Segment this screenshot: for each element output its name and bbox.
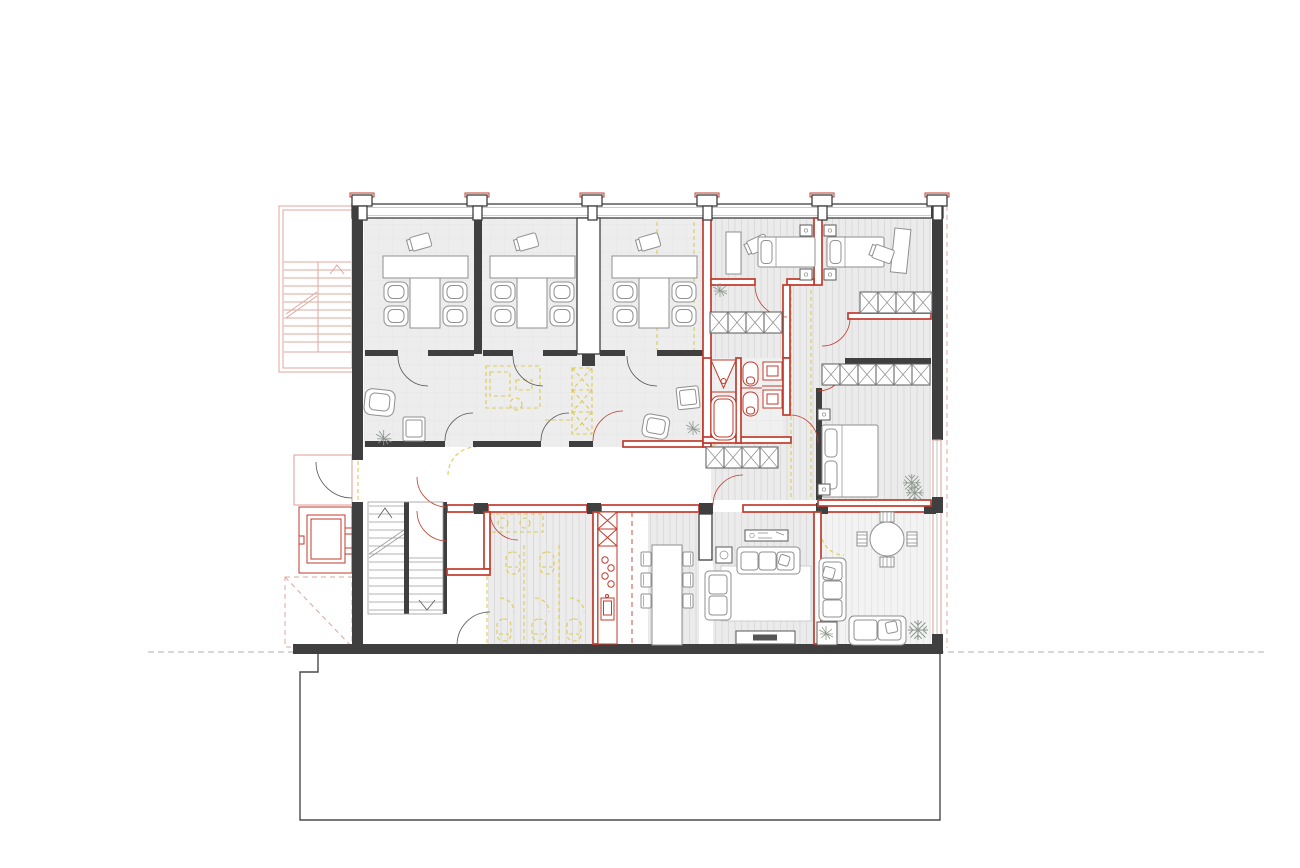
nightstand-icon bbox=[818, 484, 830, 495]
nightstand-icon bbox=[824, 225, 836, 236]
floor-plan-canvas bbox=[0, 0, 1300, 868]
kitchen-fixtures bbox=[598, 512, 632, 644]
toilet-icon bbox=[743, 392, 758, 416]
plant-icon bbox=[906, 484, 924, 502]
washbasin-icon bbox=[763, 390, 782, 408]
wardrobe-icon bbox=[822, 364, 930, 385]
nightstand-icon bbox=[800, 225, 812, 236]
duct-wall bbox=[577, 218, 600, 354]
floor-plan-page bbox=[0, 0, 1300, 868]
right-wall-upper bbox=[932, 204, 943, 440]
corridor-floor bbox=[364, 447, 704, 505]
nightstand-icon bbox=[824, 269, 836, 280]
desk-icon bbox=[726, 232, 741, 274]
planter-icon bbox=[817, 622, 837, 645]
stair-down-arrow-icon bbox=[419, 600, 435, 610]
chair-icon bbox=[683, 594, 693, 608]
entrance-porch bbox=[294, 455, 352, 505]
chair-icon bbox=[880, 557, 894, 567]
toilet-icon bbox=[743, 362, 758, 386]
left-wall-lower bbox=[352, 502, 363, 650]
sink-icon bbox=[601, 595, 614, 621]
top-facade-wall bbox=[352, 204, 943, 218]
left-wall-upper bbox=[352, 204, 363, 460]
bathtub-icon bbox=[711, 396, 736, 440]
stair-up-arrow-icon bbox=[378, 508, 392, 518]
single-bed-icon bbox=[758, 237, 815, 267]
bottom-wall bbox=[293, 644, 943, 654]
washbasin-icon bbox=[763, 362, 782, 380]
sofa-icon bbox=[737, 547, 800, 574]
nightstand-icon bbox=[800, 269, 812, 280]
plant-icon bbox=[903, 474, 921, 492]
dining-table-icon bbox=[652, 545, 682, 645]
chair-icon bbox=[907, 532, 917, 546]
wardrobe-icon bbox=[860, 292, 932, 313]
side-chair-icon bbox=[403, 417, 425, 441]
chair-icon bbox=[683, 552, 693, 566]
nightstand-icon bbox=[818, 409, 830, 420]
chair-icon bbox=[641, 573, 651, 587]
external-stair bbox=[279, 206, 356, 372]
side-chair-icon bbox=[676, 386, 700, 410]
chair-icon bbox=[880, 512, 894, 522]
tall-unit-icon bbox=[598, 529, 617, 546]
elevator-shaft bbox=[299, 507, 352, 573]
wardrobe-icon bbox=[706, 447, 778, 468]
media-unit-icon bbox=[716, 547, 732, 563]
chaise-icon bbox=[705, 571, 731, 620]
chair-icon bbox=[683, 573, 693, 587]
sofa-icon bbox=[849, 616, 906, 645]
exterior-structures bbox=[279, 206, 356, 647]
tv-lowboard-icon bbox=[736, 631, 795, 644]
tall-unit-icon bbox=[598, 512, 617, 529]
round-table-icon bbox=[870, 522, 904, 556]
chair-icon bbox=[641, 594, 651, 608]
armchair-icon bbox=[641, 413, 671, 440]
canopy-dashed bbox=[285, 577, 352, 647]
console-icon bbox=[745, 530, 788, 541]
sofa-icon bbox=[819, 558, 846, 621]
chair-icon bbox=[857, 532, 867, 546]
lower-building-outline bbox=[300, 650, 940, 820]
wardrobe-icon bbox=[710, 312, 782, 333]
plant-icon bbox=[908, 620, 928, 640]
armchair-icon bbox=[363, 388, 396, 417]
chair-icon bbox=[641, 552, 651, 566]
